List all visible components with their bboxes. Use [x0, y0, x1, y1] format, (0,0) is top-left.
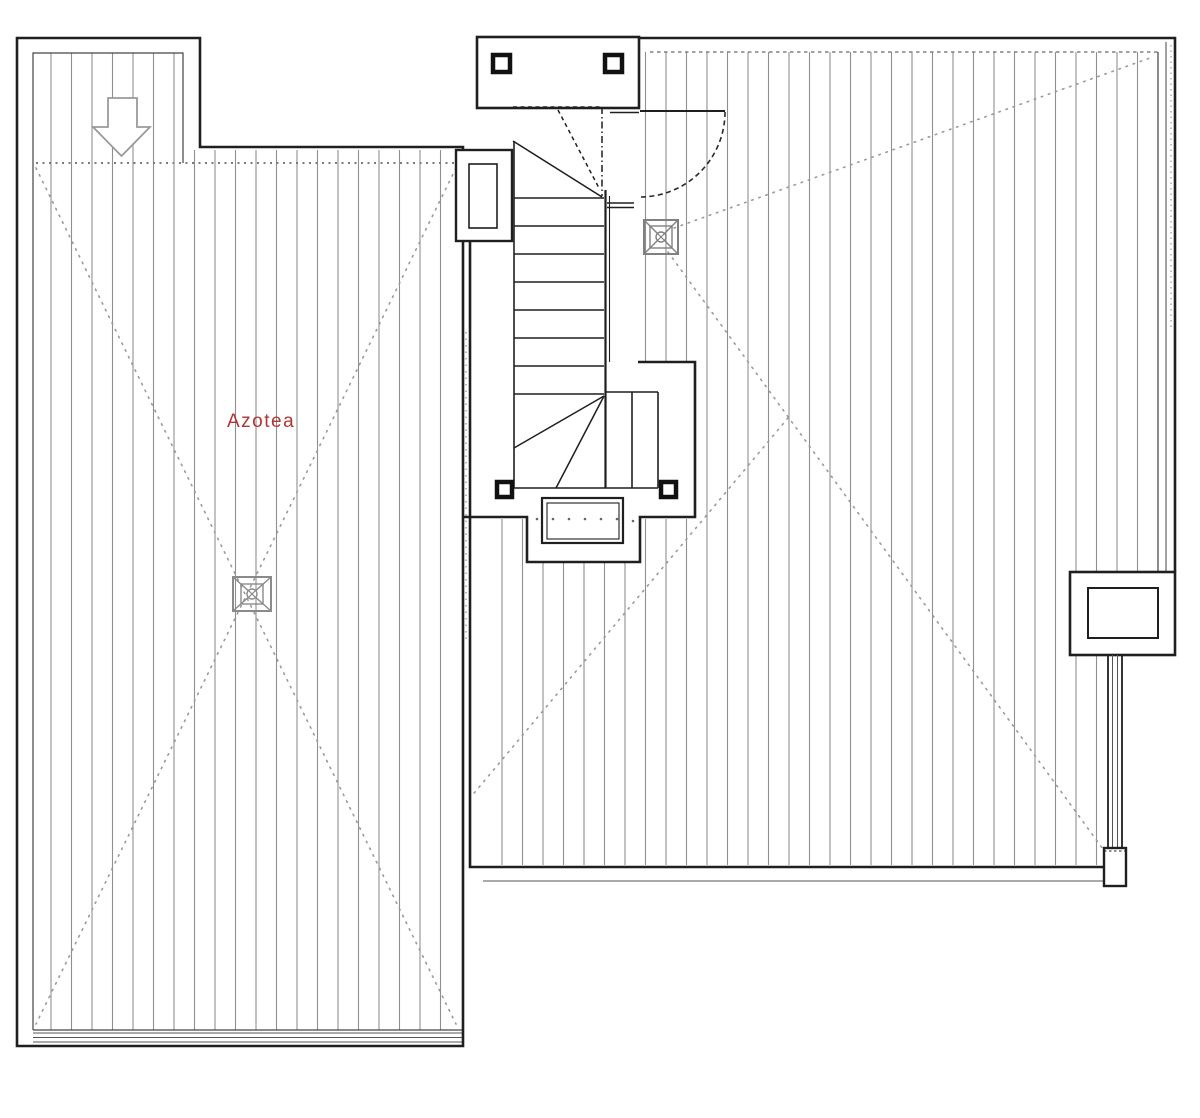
room-label-azotea: Azotea — [227, 411, 295, 432]
rain-pipe-outlet — [1104, 848, 1126, 886]
left-roof-hatch — [33, 53, 458, 1030]
door-threshold-upper — [610, 108, 639, 113]
roof-plan-drawing: Azotea — [0, 0, 1200, 1118]
skylight-curb — [1070, 572, 1175, 655]
floor-plan-canvas: Azotea — [0, 0, 1200, 1118]
stair-winders — [514, 396, 658, 488]
shaft-box — [456, 150, 512, 241]
column-top-right — [605, 55, 622, 72]
planter-grille — [536, 498, 635, 543]
stair-treads — [514, 141, 604, 488]
bottom-edge-band — [33, 1033, 462, 1042]
column-bottom-left — [497, 482, 512, 497]
rain-pipe — [1104, 655, 1126, 886]
column-bottom-right — [661, 482, 676, 497]
column-top-left — [493, 55, 510, 72]
door-jamb-lower — [607, 203, 634, 208]
right-roof-hatch — [483, 52, 1158, 865]
upper-flight-dashed-diagonal — [558, 110, 599, 188]
stair-cut-line — [513, 141, 602, 197]
